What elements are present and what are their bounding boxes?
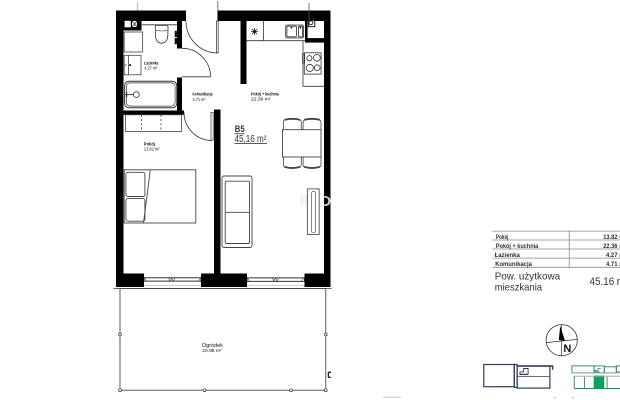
svg-text:45.16: 45.16 (590, 276, 615, 288)
svg-text:N: N (563, 343, 571, 355)
svg-text:Pokój + kuchnia: Pokój + kuchnia (496, 243, 539, 250)
svg-text:22.36 m²: 22.36 m² (251, 97, 271, 102)
svg-text:20.98 m²: 20.98 m² (202, 348, 222, 354)
svg-text:m²: m² (617, 276, 620, 288)
svg-text:4.71: 4.71 (606, 261, 618, 268)
svg-text:Komunikacja: Komunikacja (495, 261, 532, 268)
svg-text:22.36: 22.36 (603, 243, 618, 250)
svg-text:mieszkania: mieszkania (495, 283, 543, 294)
svg-text:13.82 m²: 13.82 m² (144, 147, 160, 152)
svg-text:4.71 m²: 4.71 m² (193, 97, 206, 102)
svg-text:Komunikacja: Komunikacja (193, 91, 213, 96)
svg-text:Łazienka: Łazienka (495, 252, 520, 259)
svg-text:B5: B5 (235, 124, 245, 134)
svg-text:4.27 m²: 4.27 m² (144, 66, 157, 71)
svg-text:Pokój: Pokój (496, 234, 509, 241)
svg-text:13.82: 13.82 (603, 234, 618, 241)
svg-text:D: D (320, 193, 331, 210)
svg-text:Pow. użytkowa: Pow. użytkowa (495, 271, 561, 282)
svg-text:4.27: 4.27 (606, 252, 618, 259)
